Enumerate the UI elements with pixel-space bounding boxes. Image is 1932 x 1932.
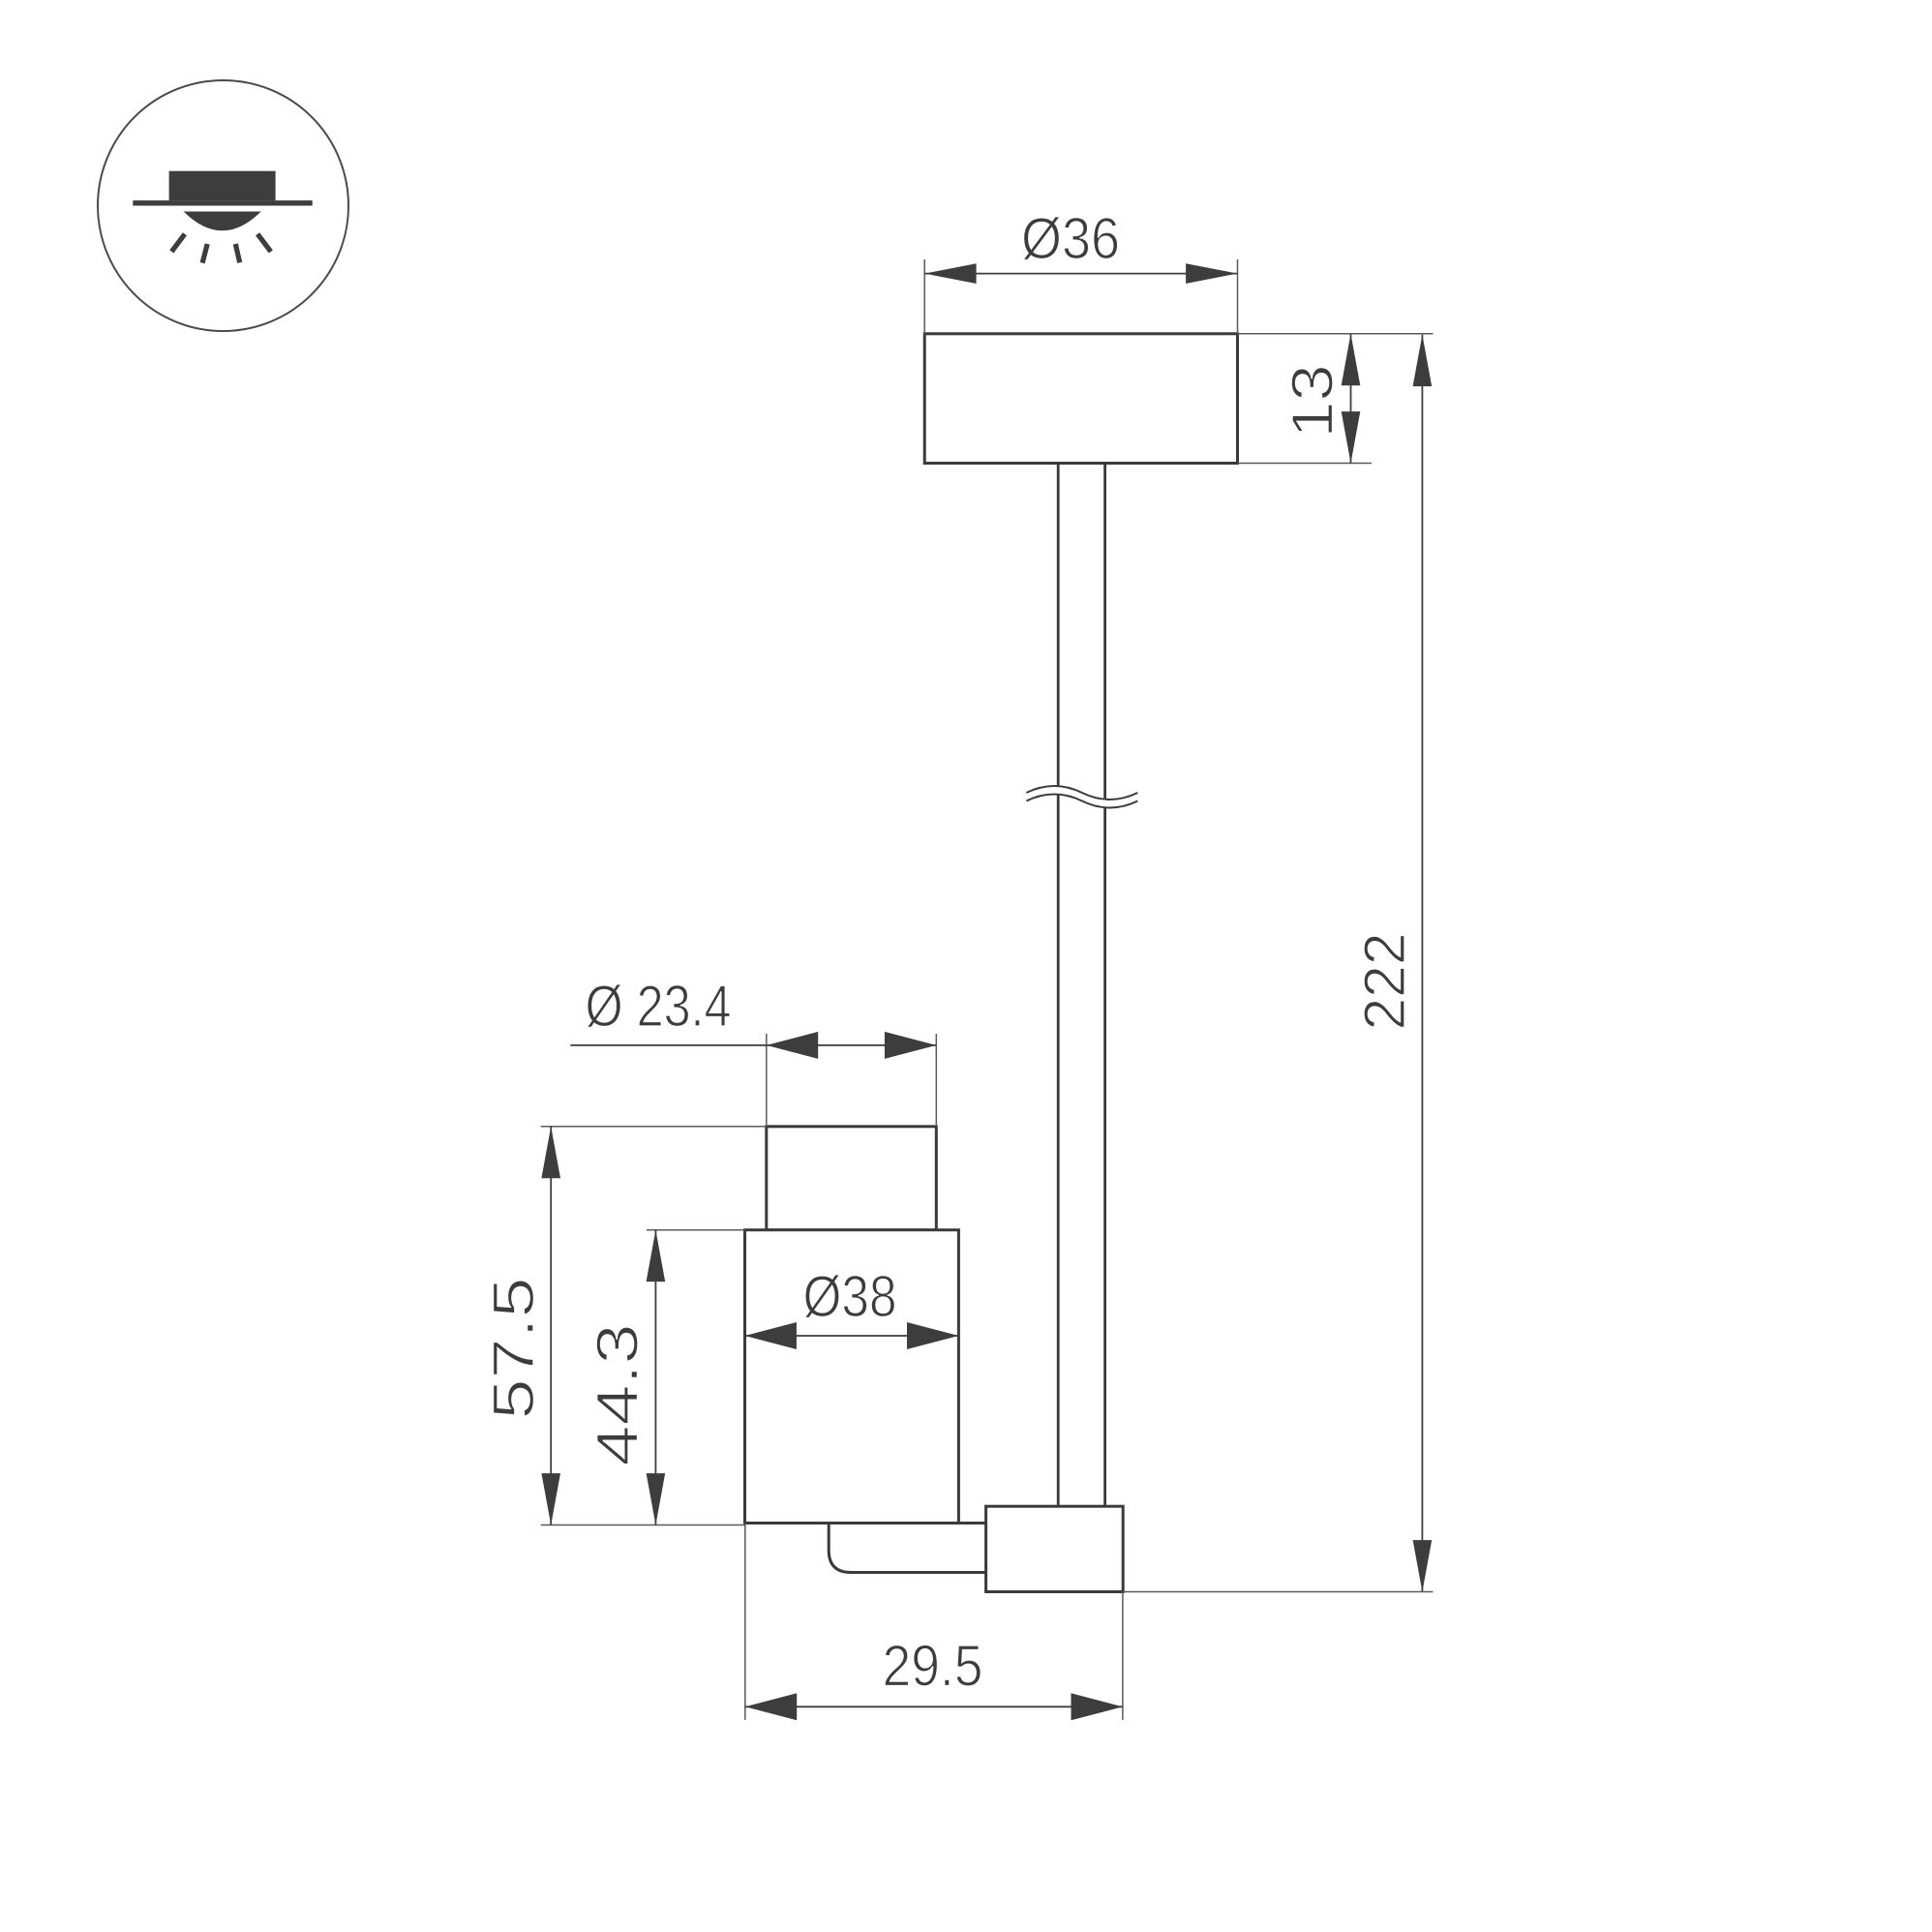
svg-text:29.5: 29.5: [883, 1634, 983, 1699]
svg-text:57.5: 57.5: [481, 1278, 546, 1420]
svg-text:13: 13: [1281, 365, 1345, 438]
svg-text:Ø 23.4: Ø 23.4: [586, 974, 732, 1039]
svg-text:44.3: 44.3: [586, 1324, 650, 1466]
svg-text:Ø36: Ø36: [1021, 206, 1120, 271]
svg-text:222: 222: [1352, 933, 1417, 1031]
svg-text:Ø38: Ø38: [803, 1264, 897, 1329]
